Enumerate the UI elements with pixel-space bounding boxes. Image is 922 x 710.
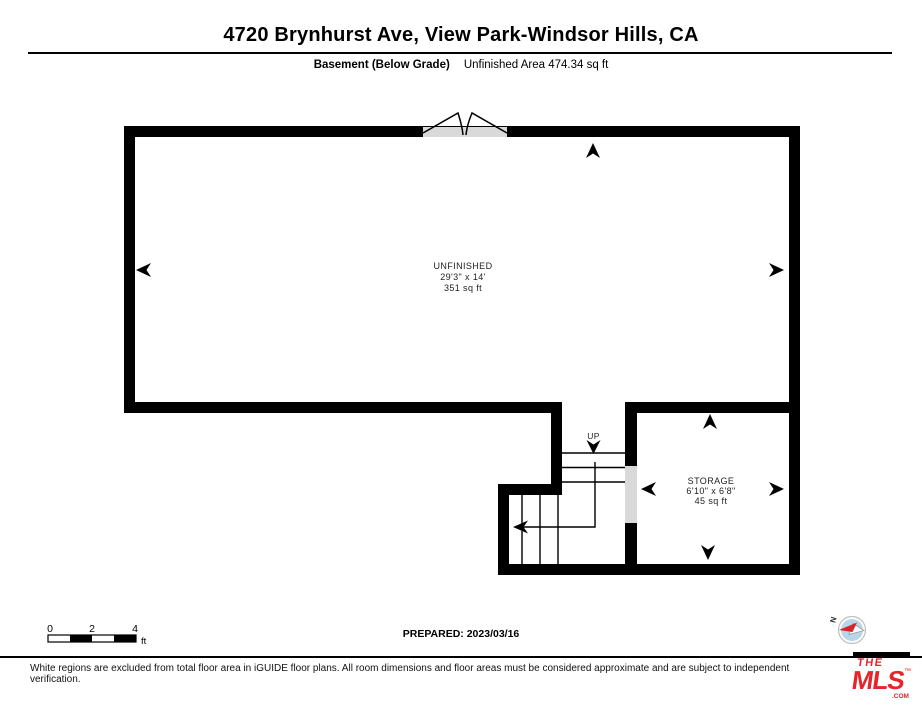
storage-arrow-right-icon [769, 482, 784, 496]
stairs-up-arrow-icon [587, 440, 601, 454]
double-door-opening [423, 127, 507, 137]
storage-room-dimensions: 6'10" x 6'8" [686, 486, 735, 496]
walls [124, 126, 800, 575]
floorplan-page: 4720 Brynhurst Ave, View Park-Windsor Hi… [0, 0, 922, 710]
dimension-arrow-left-icon [136, 263, 151, 277]
unfinished-room-dimensions: 29'3" x 14' [440, 272, 486, 282]
storage-room-name: STORAGE [688, 476, 735, 486]
disclaimer-text: White regions are excluded from total fl… [30, 663, 830, 685]
mls-logo-com: .COM [892, 694, 909, 701]
footer-divider [0, 656, 922, 658]
dimension-arrow-up-icon [586, 143, 600, 158]
mls-logo-trademark: ™ [904, 668, 911, 675]
prepared-date: PREPARED: 2023/03/16 [0, 628, 922, 640]
wall-stair-upper [551, 413, 562, 495]
storage-door-opening [625, 466, 637, 523]
dimension-arrow-right-icon [769, 263, 784, 277]
storage-room-area: 45 sq ft [695, 496, 728, 506]
storage-arrow-left-icon [641, 482, 656, 496]
storage-arrow-down-icon [701, 545, 715, 560]
stairs-up-label: UP [587, 431, 599, 441]
wall-stair-left [498, 484, 509, 575]
wall-main-bottom [124, 402, 562, 413]
room-labels: UNFINISHED 29'3" x 14' 351 sq ft STORAGE… [433, 261, 735, 506]
wall-bottom [498, 564, 800, 575]
dimension-arrows [136, 143, 784, 560]
stair-treads [522, 453, 625, 564]
unfinished-room-area: 351 sq ft [444, 283, 482, 293]
wall-storage-top [625, 402, 800, 413]
mls-logo-text: MLS [850, 667, 906, 693]
storage-arrow-up-icon [703, 414, 717, 429]
unfinished-room-name: UNFINISHED [433, 261, 492, 271]
floorplan-drawing: UP UNFINISHED 29'3" x 14' 351 sq ft STOR… [0, 0, 922, 710]
compass-north-label: N [828, 616, 838, 624]
wall-left [124, 126, 135, 413]
wall-right [789, 126, 800, 575]
